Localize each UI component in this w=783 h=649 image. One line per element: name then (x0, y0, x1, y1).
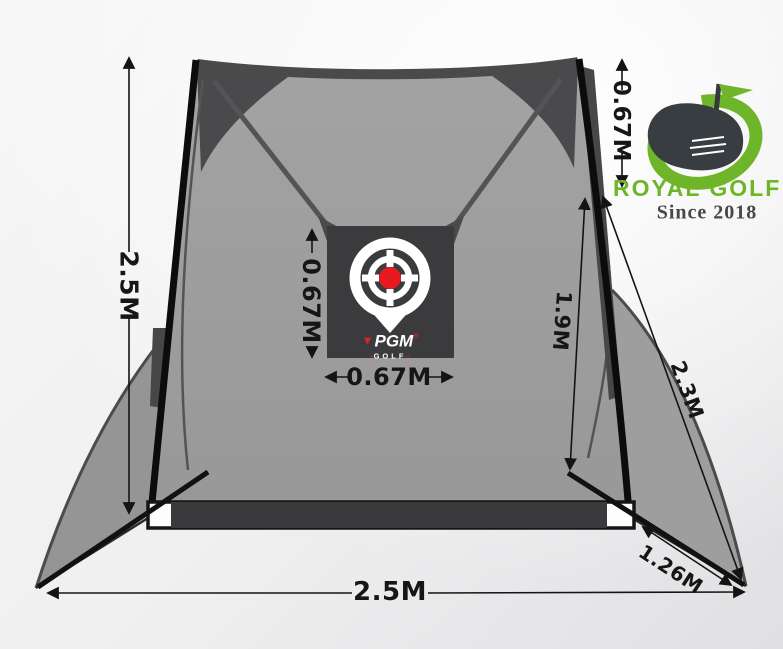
dim-label-base-width: 2.5M (353, 577, 427, 607)
pgm-flag-icon: ▼ (362, 333, 374, 347)
pgm-logo-line1: ▼PGM® (362, 332, 419, 349)
pgm-logo-sub: GOLF (374, 351, 407, 360)
base-frame (148, 502, 634, 528)
dim-label-top-section: 0.67M (608, 80, 634, 162)
flag-icon (719, 84, 753, 100)
brand-tagline: Since 2018 (657, 202, 758, 225)
pgm-logo: ▼PGM® –GOLF– (362, 332, 419, 360)
left-wing (36, 335, 165, 588)
registered-mark: ® (413, 333, 418, 340)
pgm-dash-right: – (406, 351, 410, 360)
brand-name: ROYAL GOLF (613, 175, 781, 202)
dim-label-target-height: 0.67M (297, 258, 325, 344)
pgm-logo-text: PGM (374, 331, 413, 350)
product-diagram: 2.5M 0.67M 0.67M 0.67M 1.9M 2.3M 1.26M 2… (0, 0, 783, 649)
dim-label-side-inner: 1.9M (548, 290, 576, 352)
dim-label-target-width: 0.67M (346, 363, 432, 391)
pgm-logo-line2: –GOLF– (362, 352, 419, 360)
golf-club-icon (648, 103, 743, 170)
dim-label-net-height: 2.5M (115, 250, 144, 321)
